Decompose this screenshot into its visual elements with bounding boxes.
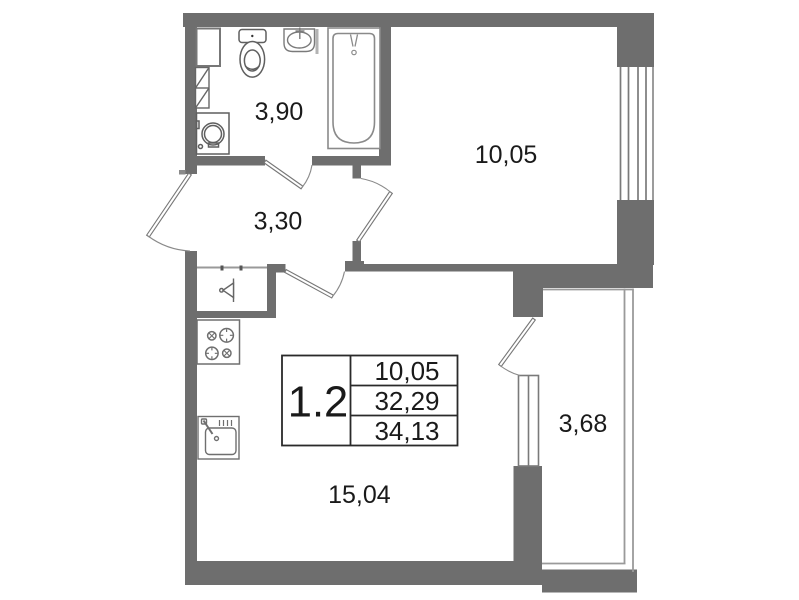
svg-text:3,68: 3,68 [559,410,608,438]
svg-text:34,13: 34,13 [374,416,439,446]
svg-text:3,30: 3,30 [254,208,303,236]
svg-text:15,04: 15,04 [328,481,391,509]
svg-text:1.2: 1.2 [288,379,348,427]
svg-text:10,05: 10,05 [374,356,439,386]
svg-text:32,29: 32,29 [374,386,439,416]
svg-text:3,90: 3,90 [255,98,304,126]
svg-text:10,05: 10,05 [475,141,538,169]
